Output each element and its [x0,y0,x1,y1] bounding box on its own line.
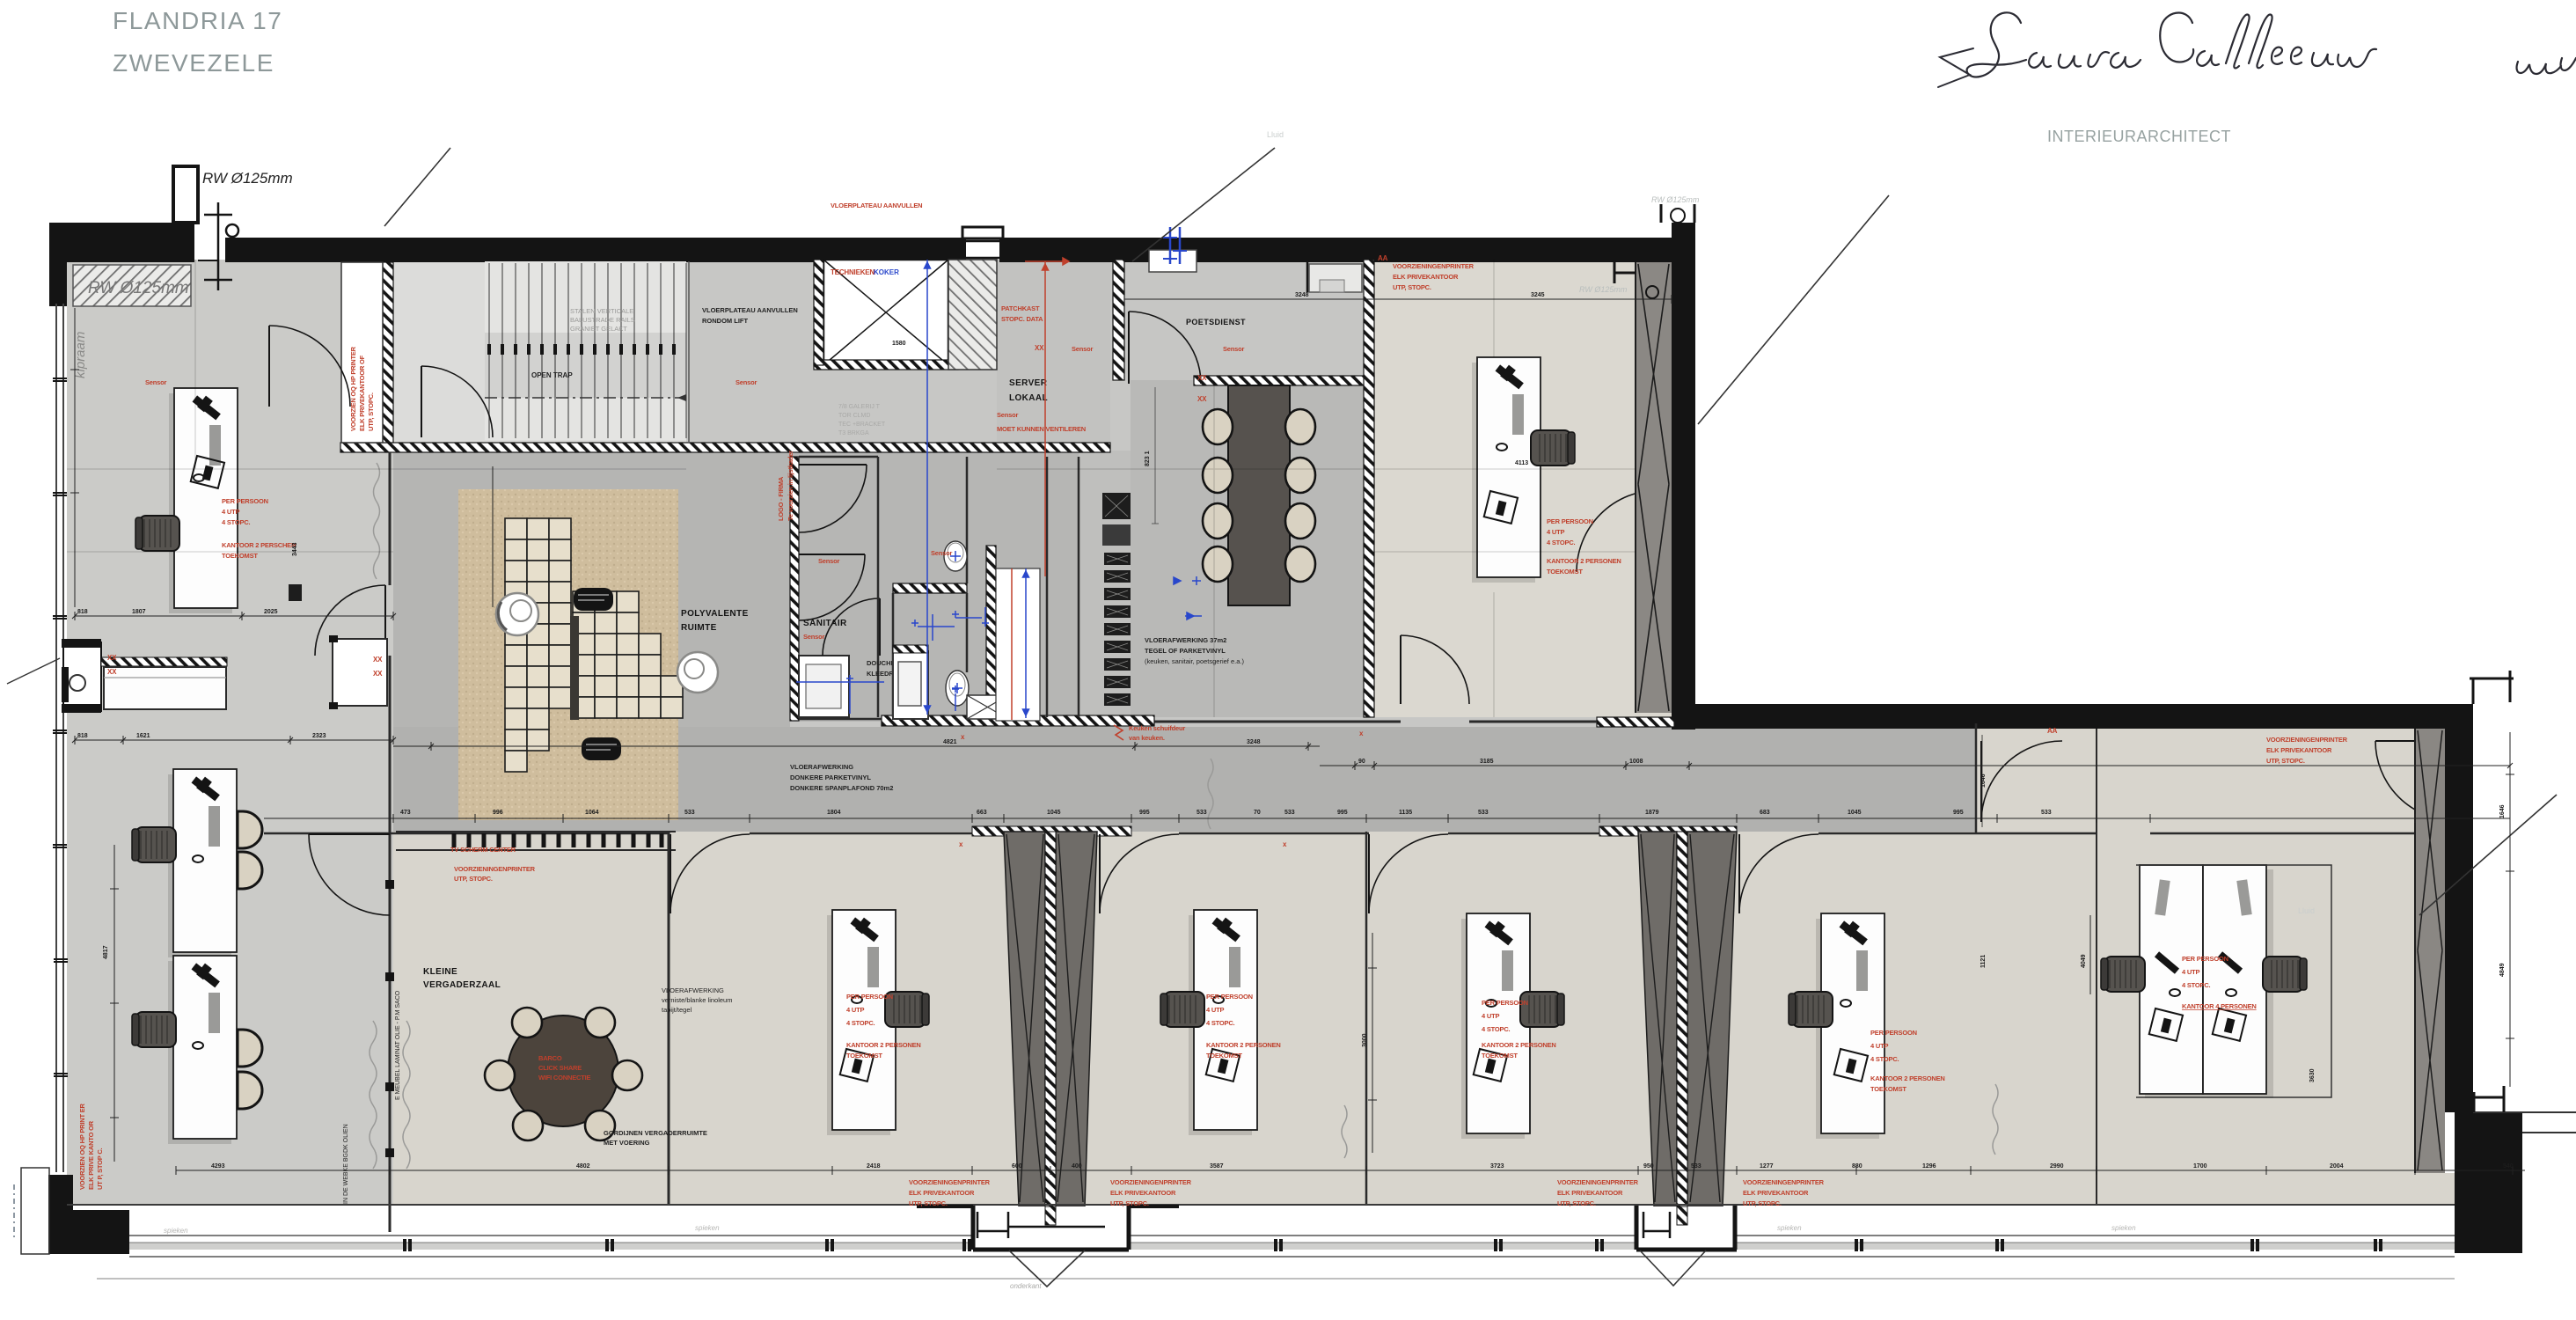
svg-text:XX: XX [1035,344,1044,352]
svg-text:UTP, STOPC.: UTP, STOPC. [367,392,375,431]
svg-text:AA: AA [1378,254,1388,262]
svg-text:1804: 1804 [827,810,841,816]
svg-text:1064: 1064 [585,810,599,816]
svg-text:PER PERSOON: PER PERSOON [1206,993,1253,1001]
svg-text:1008: 1008 [1629,759,1643,765]
svg-text:2025: 2025 [264,609,278,615]
svg-text:600: 600 [1012,1163,1022,1170]
svg-text:VOORZIENINGENPRINTER: VOORZIENINGENPRINTER [454,865,536,873]
svg-text:STALEN VERTICALE: STALEN VERTICALE [570,307,633,315]
svg-text:PER PERSOON: PER PERSOON [2182,955,2228,963]
svg-text:4 UTP: 4 UTP [846,1006,864,1014]
svg-text:683: 683 [1760,810,1770,816]
svg-text:818: 818 [77,609,88,615]
svg-text:PER PERSOON: PER PERSOON [1482,999,1528,1007]
svg-text:4 UTP: 4 UTP [1206,1006,1224,1014]
svg-text:3185: 3185 [1480,759,1494,765]
svg-text:995: 995 [1139,810,1150,816]
svg-text:818: 818 [77,733,88,739]
svg-text:4849: 4849 [2499,963,2506,977]
svg-text:RW Ø125mm: RW Ø125mm [88,279,189,297]
svg-text:4 STOPC.: 4 STOPC. [846,1019,875,1027]
svg-text:ELK PRIVEKANTOOR: ELK PRIVEKANTOOR [1743,1189,1809,1197]
svg-text:UTP, STOPC.: UTP, STOPC. [2266,757,2305,765]
svg-text:kipraam: kipraam [73,332,88,378]
svg-text:TOEKOMST: TOEKOMST [1870,1085,1906,1093]
svg-text:4802: 4802 [576,1163,590,1170]
svg-text:BARCO: BARCO [538,1054,562,1062]
svg-text:WIFI CONNECTIE: WIFI CONNECTIE [538,1074,590,1082]
svg-text:4 UTP: 4 UTP [2182,968,2199,976]
svg-text:VOORZIENINGENPRINTER: VOORZIENINGENPRINTER [1743,1178,1825,1186]
svg-text:UTP, STOPC.: UTP, STOPC. [1557,1199,1596,1207]
svg-text:533: 533 [684,810,695,816]
svg-text:KANTOOR 2 PERSCHEN: KANTOOR 2 PERSCHEN [222,541,296,549]
svg-text:spieken: spieken [164,1227,188,1235]
svg-text:533: 533 [1197,810,1207,816]
svg-text:MOET KUNNEN VENTILEREN: MOET KUNNEN VENTILEREN [997,425,1086,433]
svg-text:DOUCHE: DOUCHE [867,659,896,667]
svg-text:AA: AA [2047,727,2058,735]
svg-text:XX: XX [1197,374,1207,382]
svg-text:KANTOOR 2 PERSONEN: KANTOOR 2 PERSONEN [1870,1074,1945,1082]
svg-text:4 STOPC.: 4 STOPC. [1870,1055,1899,1063]
svg-text:KANTOOR 2 PERSONEN: KANTOOR 2 PERSONEN [1206,1041,1281,1049]
svg-text:Sensor: Sensor [1072,345,1094,353]
svg-text:995: 995 [1953,810,1964,816]
svg-text:LOKAAL: LOKAAL [1009,393,1048,403]
svg-text:UTP, STOPC.: UTP, STOPC. [1393,283,1431,291]
svg-text:KANTOOR 2 PERSONEN: KANTOOR 2 PERSONEN [1482,1041,1556,1049]
svg-text:VERGADERZAAL: VERGADERZAAL [423,980,501,990]
svg-text:KANTOOR 2 PERSONEN: KANTOOR 2 PERSONEN [846,1041,921,1049]
svg-text:UTP, STOPC.: UTP, STOPC. [1743,1199,1782,1207]
svg-text:1045: 1045 [1047,810,1061,816]
svg-text:INTERIEURARCHITECT: INTERIEURARCHITECT [2047,128,2231,145]
svg-text:VLOERPLATEAU AANVULLEN: VLOERPLATEAU AANVULLEN [702,306,798,314]
svg-text:KLEINE: KLEINE [423,967,457,977]
svg-text:533: 533 [1284,810,1295,816]
svg-text:400: 400 [1072,1163,1082,1170]
svg-text:Sensor: Sensor [803,633,825,641]
svg-text:3000: 3000 [1362,1033,1368,1047]
svg-text:1045: 1045 [1848,810,1862,816]
svg-text:RONDOM LIFT: RONDOM LIFT [702,317,748,325]
svg-text:995: 995 [1337,810,1348,816]
svg-text:TOEKOMST: TOEKOMST [1482,1052,1518,1060]
svg-text:KANTOOR 2 PERSONEN: KANTOOR 2 PERSONEN [1547,557,1621,565]
svg-text:TOR CLMD: TOR CLMD [838,413,870,419]
svg-text:TOEKOMST: TOEKOMST [222,552,258,560]
svg-text:4049: 4049 [2081,954,2087,968]
svg-text:4 UTP: 4 UTP [1482,1012,1499,1020]
svg-text:BALUSTRADE RAILS: BALUSTRADE RAILS [570,316,635,324]
svg-text:MET VOERING: MET VOERING [604,1139,650,1147]
svg-text:verniste/blanke linoleum: verniste/blanke linoleum [662,996,732,1004]
svg-text:Lluid: Lluid [2298,906,2315,915]
svg-text:CLICK SHARE: CLICK SHARE [538,1064,582,1072]
svg-text:ELK PRIVEKANTOOR: ELK PRIVEKANTOOR [909,1189,975,1197]
svg-text:UTP, STOPC.: UTP, STOPC. [1110,1199,1149,1207]
svg-text:1580: 1580 [892,341,906,347]
svg-text:POLYVALENTE: POLYVALENTE [681,609,749,619]
svg-text:RW Ø125mm: RW Ø125mm [1651,195,1700,204]
svg-text:1879: 1879 [1645,810,1659,816]
svg-text:RUIMTE: RUIMTE [681,623,717,633]
svg-text:LOGO - FIRMA: LOGO - FIRMA [777,476,785,521]
svg-text:ELK PRIVE KANTO OR: ELK PRIVE KANTO OR [87,1120,95,1190]
svg-text:VLOERAFWERKING: VLOERAFWERKING [790,763,853,771]
svg-text:RW Ø125mm: RW Ø125mm [202,170,293,187]
svg-text:VLOERPLATEAU AANVULLEN: VLOERPLATEAU AANVULLEN [831,202,922,209]
svg-text:1700: 1700 [2193,1163,2207,1170]
svg-text:ELK PRIVEKANTOOR: ELK PRIVEKANTOOR [1393,273,1459,281]
svg-text:4113: 4113 [1515,460,1528,466]
svg-text:KANTOOR 4 PERSONEN: KANTOOR 4 PERSONEN [2182,1002,2257,1010]
svg-text:3248: 3248 [1295,292,1309,298]
svg-text:IN DE WEBKE BGDK OLIEN: IN DE WEBKE BGDK OLIEN [343,1124,349,1204]
svg-text:Keuken schuifdeur: Keuken schuifdeur [1129,724,1185,732]
svg-text:TEC +BRACKET: TEC +BRACKET [838,422,886,428]
svg-text:STOPC. DATA: STOPC. DATA [1001,315,1043,323]
svg-text:GRANIET GELAKT: GRANIET GELAKT [570,325,627,333]
svg-text:4 STOPC.: 4 STOPC. [2182,981,2211,989]
svg-text:E MEUBEL LAMINAT OLIE - P.M SA: E MEUBEL LAMINAT OLIE - P.M SACO [395,990,401,1100]
svg-text:spieken: spieken [695,1224,720,1232]
svg-text:Sensor: Sensor [1223,345,1245,353]
svg-text:DONKERE SPANPLAFOND 70m2: DONKERE SPANPLAFOND 70m2 [790,784,893,792]
svg-text:Sensor: Sensor [818,557,840,565]
svg-text:3443: 3443 [292,542,298,556]
svg-text:Sensor: Sensor [735,378,757,386]
svg-text:90: 90 [1358,759,1365,765]
svg-text:XX: XX [1197,395,1207,403]
svg-text:TOEKOMST: TOEKOMST [846,1052,882,1060]
svg-text:VOORZIENINGENPRINTER: VOORZIENINGENPRINTER [2266,736,2348,744]
svg-text:FLANDRIA 17: FLANDRIA 17 [113,7,282,34]
svg-text:4 STOPC.: 4 STOPC. [1206,1019,1235,1027]
svg-text:2004: 2004 [2330,1163,2344,1170]
svg-text:996: 996 [493,810,503,816]
svg-text:tapijt/tegel: tapijt/tegel [662,1006,692,1014]
svg-text:1646: 1646 [1980,774,1987,788]
svg-text:4 UTP: 4 UTP [1547,528,1564,536]
svg-text:950: 950 [1643,1163,1654,1170]
svg-text:RW Ø125mm: RW Ø125mm [1579,285,1628,294]
svg-text:VOORZIENINGENPRINTER: VOORZIENINGENPRINTER [1557,1178,1639,1186]
svg-text:1621: 1621 [136,733,150,739]
svg-text:1121: 1121 [1980,955,1987,968]
svg-text:UTP, STOPC.: UTP, STOPC. [454,875,493,883]
svg-text:SANITAIR: SANITAIR [803,619,847,628]
svg-text:1277: 1277 [1760,1163,1774,1170]
svg-text:473: 473 [400,810,411,816]
svg-text:PER PERSOON: PER PERSOON [1870,1029,1917,1037]
svg-text:OPEN TRAP: OPEN TRAP [531,371,573,379]
svg-text:540: 540 [2503,1163,2514,1170]
svg-text:4 STOPC.: 4 STOPC. [1482,1025,1511,1033]
svg-text:ELK PRIVEKANTOOR: ELK PRIVEKANTOOR [1557,1189,1623,1197]
svg-text:ELK PRIVEKANTOOR: ELK PRIVEKANTOOR [2266,746,2332,754]
svg-text:UT P, STOP C.: UT P, STOP C. [96,1148,104,1190]
svg-text:533: 533 [1691,1163,1701,1170]
svg-text:4821: 4821 [943,739,957,745]
svg-text:533: 533 [2041,810,2052,816]
svg-text:TOEKOMST: TOEKOMST [1206,1052,1242,1060]
svg-text:1807: 1807 [132,609,146,615]
svg-text:DONKERE PARKETVINYL: DONKERE PARKETVINYL [790,774,871,781]
svg-text:823 1: 823 1 [1145,451,1151,466]
svg-text:533: 533 [1478,810,1489,816]
svg-text:XX: XX [107,668,117,676]
svg-text:spieken: spieken [2111,1224,2136,1232]
svg-text:Sensor: Sensor [997,411,1019,419]
svg-text:onderkant: onderkant [1010,1282,1042,1290]
svg-text:ELK PRIVEKANTOOR OF: ELK PRIVEKANTOOR OF [358,355,366,431]
svg-text:TOEKOMST: TOEKOMST [1547,568,1583,576]
svg-text:ELK PRIVEKANTOOR: ELK PRIVEKANTOOR [1110,1189,1176,1197]
svg-text:3248: 3248 [1247,739,1261,745]
svg-text:van keuken.: van keuken. [1129,734,1165,742]
svg-text:3630: 3630 [2309,1068,2316,1082]
svg-text:ZWEVEZELE: ZWEVEZELE [113,49,274,77]
svg-text:XX: XX [373,670,383,678]
svg-text:VOORZIENINGENPRINTER: VOORZIENINGENPRINTER [1110,1178,1192,1186]
svg-text:1296: 1296 [1922,1163,1936,1170]
svg-text:VOORZIENINGENPRINTER: VOORZIENINGENPRINTER [1393,262,1475,270]
svg-text:4293: 4293 [211,1163,225,1170]
svg-text:XX: XX [373,656,383,664]
svg-text:spieken: spieken [1777,1224,1802,1232]
svg-text:T3 BRKGA: T3 BRKGA [838,430,869,436]
svg-text:VLOERAFWERKING: VLOERAFWERKING [662,986,724,994]
svg-text:Lluid: Lluid [1267,130,1284,139]
svg-text:PER PERSOON: PER PERSOON [846,993,893,1001]
svg-text:XX: XX [107,654,117,662]
svg-text:4 UTP: 4 UTP [222,508,239,516]
svg-text:1646: 1646 [2499,804,2506,818]
svg-text:2990: 2990 [2050,1163,2064,1170]
svg-text:POETSDIENST: POETSDIENST [1186,318,1246,326]
svg-text:4 STOPC.: 4 STOPC. [222,518,251,526]
svg-text:(keuken, sanitair, poetsgerief: (keuken, sanitair, poetsgerief e.a.) [1145,657,1244,665]
svg-text:UTP, STOPC.: UTP, STOPC. [909,1199,948,1207]
svg-text:4 UTP: 4 UTP [1870,1042,1888,1050]
svg-text:4 STOPC.: 4 STOPC. [1547,539,1576,546]
svg-text:2323: 2323 [312,733,326,739]
svg-text:3587: 3587 [1210,1163,1224,1170]
svg-text:3723: 3723 [1490,1163,1504,1170]
svg-text:4817: 4817 [103,945,109,959]
svg-text:1135: 1135 [1399,810,1412,816]
svg-text:TV SCHERM CENTER: TV SCHERM CENTER [450,846,516,854]
svg-text:KOKER: KOKER [874,268,899,276]
svg-text:VOORZIEN OQ HP PRINTER: VOORZIEN OQ HP PRINTER [349,346,357,431]
svg-text:PATCHKAST: PATCHKAST [1001,304,1040,312]
svg-text:7/8 GALERIJ T: 7/8 GALERIJ T [838,404,881,410]
svg-text:880: 880 [1852,1163,1862,1170]
svg-text:GORDIJNEN VERGADERRUIMTE: GORDIJNEN VERGADERRUIMTE [604,1129,707,1137]
svg-text:PER PERSOON: PER PERSOON [222,497,268,505]
svg-text:Sensor: Sensor [145,378,167,386]
svg-text:PER PERSOON: PER PERSOON [1547,517,1593,525]
svg-text:Sensor: Sensor [931,549,953,557]
svg-text:663: 663 [977,810,987,816]
svg-text:VOORZIEN OQ HP PRINT ER: VOORZIEN OQ HP PRINT ER [78,1103,86,1190]
svg-text:3245: 3245 [1531,292,1545,298]
svg-text:SERVER: SERVER [1009,378,1048,388]
svg-text:Te voorzien in lijstkader: Te voorzien in lijstkader [787,451,794,521]
svg-text:VOORZIENINGENPRINTER: VOORZIENINGENPRINTER [909,1178,991,1186]
svg-text:TECHNIEKEN: TECHNIEKEN [831,268,875,276]
svg-text:2418: 2418 [867,1163,881,1170]
svg-text:70: 70 [1254,810,1261,816]
